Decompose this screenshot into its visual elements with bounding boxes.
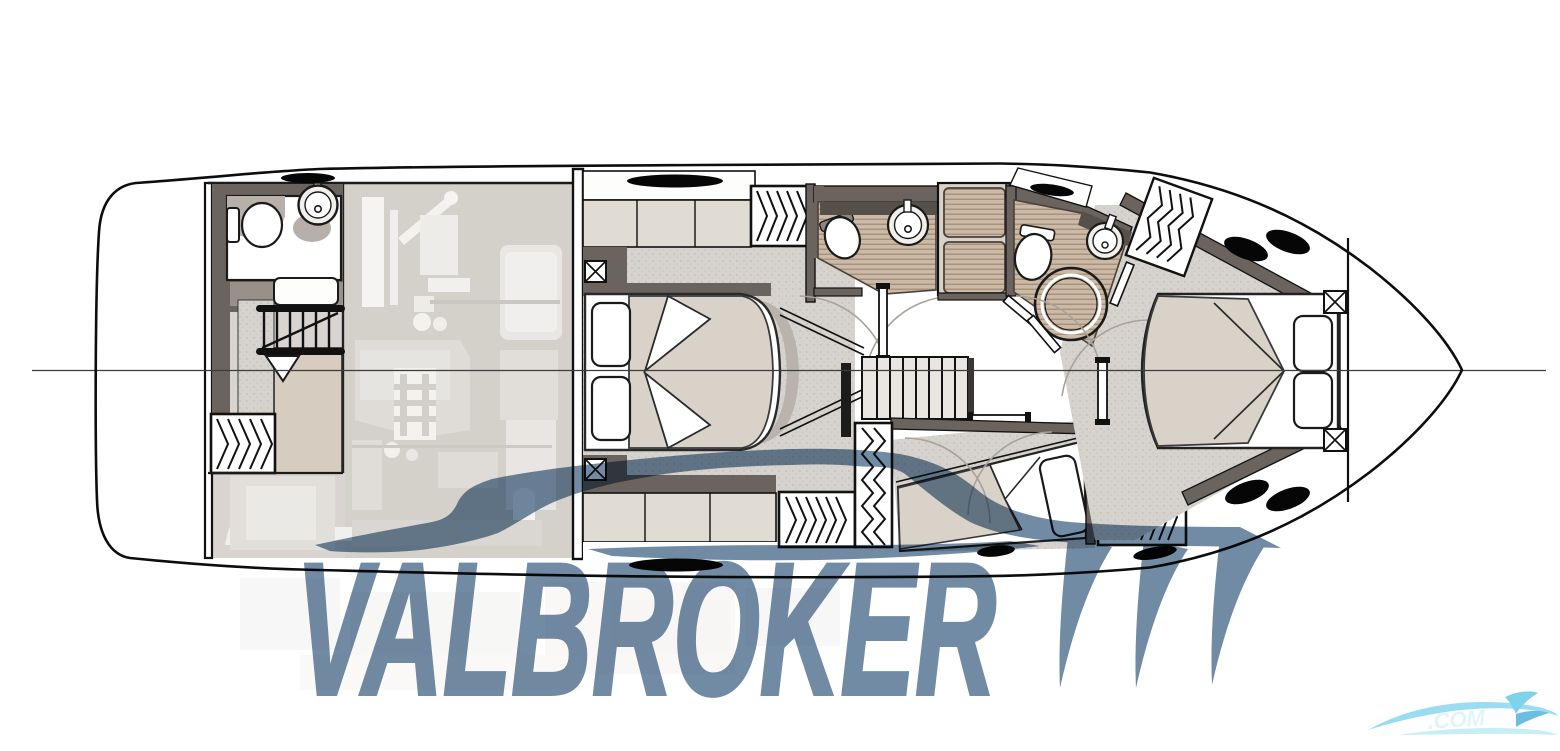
svg-text:.COM: .COM [1427, 705, 1487, 734]
svg-text:VALBROKER: VALBROKER [296, 524, 996, 734]
